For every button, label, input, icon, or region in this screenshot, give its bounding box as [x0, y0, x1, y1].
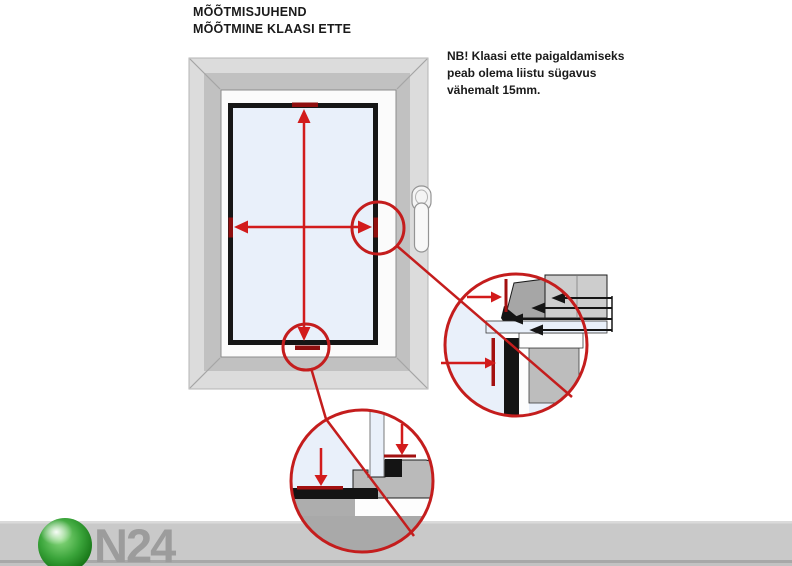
page-title-line2: MÕÕTMINE KLAASI ETTE: [193, 21, 473, 38]
window-handle: [412, 186, 431, 252]
note-line3: vähemalt 15mm.: [447, 82, 677, 99]
jamb-face: [529, 348, 579, 403]
frame-profile-section: [545, 275, 607, 318]
note-line1: NB! Klaasi ette paigaldamiseks: [447, 48, 677, 65]
window-illustration: [189, 58, 431, 389]
logo: N24: [38, 518, 174, 566]
page-title: MÕÕTMISJUHEND MÕÕTMINE KLAASI ETTE: [193, 4, 473, 38]
page-title-line1: MÕÕTMISJUHEND: [193, 4, 473, 21]
note-text: NB! Klaasi ette paigaldamiseks peab olem…: [447, 48, 677, 99]
measure-tick-left: [229, 218, 234, 238]
logo-ball-icon: [38, 518, 92, 566]
glass-edge-section: [486, 321, 607, 333]
measure-tick-top: [292, 103, 318, 108]
bead-section: [385, 459, 402, 477]
glass-edge-section: [370, 406, 384, 478]
measure-tick-right: [374, 218, 379, 238]
measurement-instruction-page: MÕÕTMISJUHEND MÕÕTMINE KLAASI ETTE NB! K…: [0, 0, 792, 566]
note-line2: peab olema liistu sügavus: [447, 65, 677, 82]
logo-text: N24: [94, 522, 174, 566]
bead-strip-face: [290, 488, 378, 499]
measure-tick-bottom: [295, 346, 320, 351]
